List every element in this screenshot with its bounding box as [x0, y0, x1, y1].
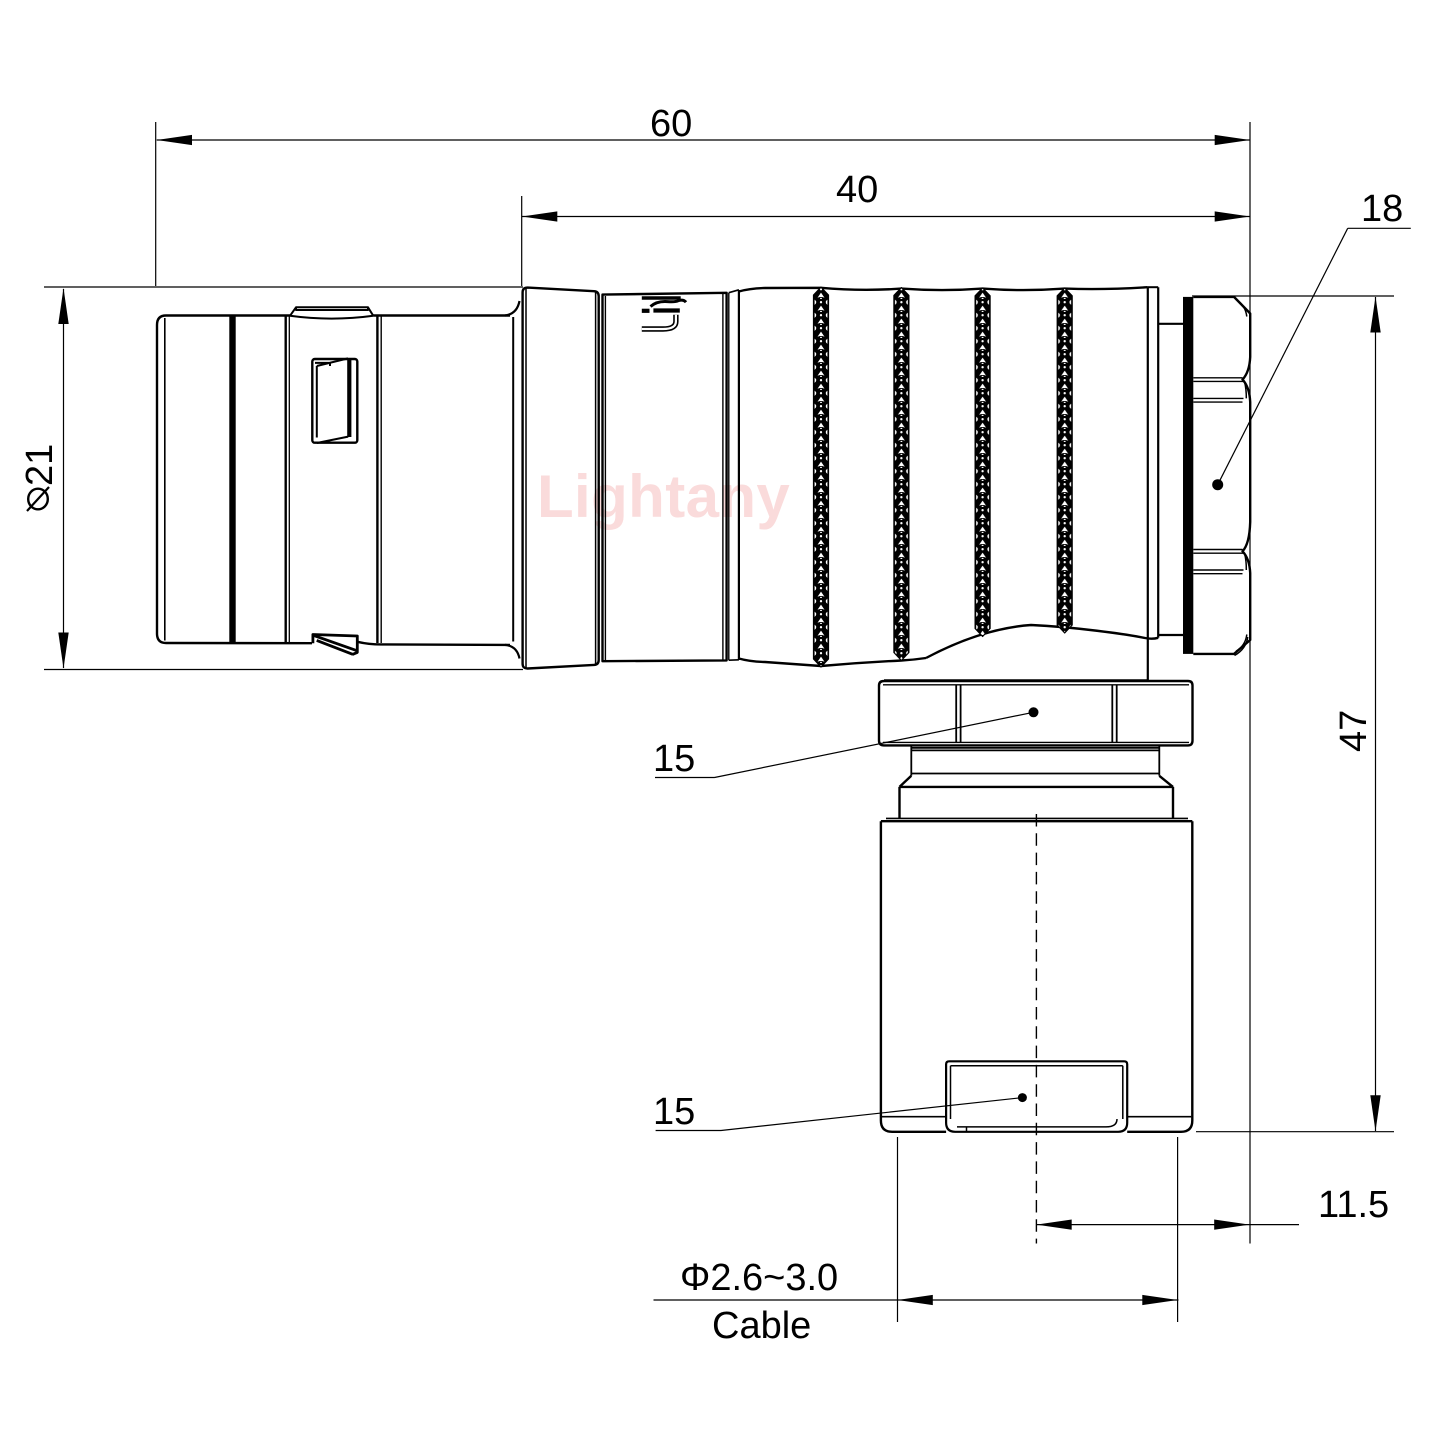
svg-text:47: 47 — [1333, 710, 1375, 752]
svg-text:11.5: 11.5 — [1318, 1184, 1389, 1226]
svg-text:40: 40 — [836, 169, 878, 211]
svg-text:15: 15 — [653, 738, 695, 780]
svg-text:60: 60 — [650, 103, 692, 145]
svg-text:Φ2.6~3.0: Φ2.6~3.0 — [680, 1257, 838, 1299]
svg-text:18: 18 — [1361, 188, 1403, 230]
svg-text:21: 21 — [19, 444, 61, 486]
svg-text:Cable: Cable — [712, 1305, 811, 1347]
svg-text:15: 15 — [653, 1091, 695, 1133]
svg-text:Lightany: Lightany — [537, 463, 790, 530]
